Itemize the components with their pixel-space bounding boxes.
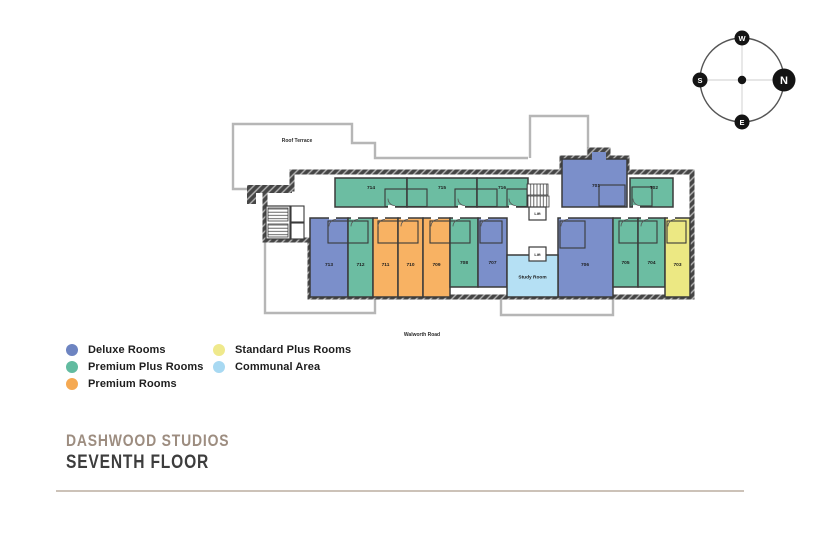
- legend-label-premium-plus: Premium Plus Rooms: [88, 361, 204, 373]
- roof-terrace-label: Roof Terrace: [282, 138, 313, 144]
- lift-lower-label: Lift: [534, 252, 541, 257]
- legend-item-communal: Communal Area: [213, 361, 351, 373]
- room-707-label: 707: [488, 260, 496, 266]
- compass-west-label: W: [738, 34, 746, 43]
- legend-label-standard-plus: Standard Plus Rooms: [235, 344, 351, 356]
- legend-label-deluxe: Deluxe Rooms: [88, 344, 166, 356]
- legend-swatch-communal: [213, 361, 225, 373]
- road-label: Walworth Road: [404, 332, 440, 338]
- legend-item-standard-plus: Standard Plus Rooms: [213, 344, 351, 356]
- brand-title: DASHWOOD STUDIOS: [66, 430, 229, 451]
- legend-item-premium: Premium Rooms: [66, 378, 204, 390]
- legend-swatch-premium: [66, 378, 78, 390]
- room-704-label: 704: [647, 260, 655, 266]
- entrance-wall-side: [247, 185, 256, 204]
- floor-plan: Lift Lift 714 715 716 701 702: [225, 105, 705, 355]
- room-716: [477, 178, 528, 207]
- room-712-label: 712: [356, 262, 364, 268]
- room-703-label: 703: [673, 262, 681, 268]
- room-715-label: 715: [438, 185, 446, 191]
- legend-swatch-premium-plus: [66, 361, 78, 373]
- room-715: [407, 178, 477, 207]
- study-room-label: Study Room: [518, 275, 546, 281]
- room-701: [562, 159, 627, 207]
- stairs-flight-mid: [527, 184, 548, 195]
- title-block: DASHWOOD STUDIOS SEVENTH FLOOR: [66, 430, 229, 476]
- legend-item-premium-plus: Premium Plus Rooms: [66, 361, 204, 373]
- room-705-label: 705: [621, 260, 629, 266]
- compass-south-label: S: [697, 76, 702, 85]
- room-711: [373, 218, 398, 297]
- page-title: SEVENTH FLOOR: [66, 451, 229, 476]
- stairs-flight: [268, 208, 288, 221]
- lower-center-terrace-outline: [501, 299, 613, 315]
- room-701-bay: [592, 152, 606, 160]
- room-704: [638, 218, 665, 287]
- room-714-label: 714: [367, 185, 375, 191]
- room-701-label: 701: [592, 183, 600, 189]
- legend-label-communal: Communal Area: [235, 361, 320, 373]
- stairs-flight-mid: [528, 196, 549, 207]
- stairs-flight: [268, 224, 288, 237]
- room-710: [398, 218, 423, 297]
- compass-north-label: N: [780, 75, 788, 87]
- footer-divider: [56, 490, 744, 492]
- room-708-label: 708: [460, 260, 468, 266]
- legend-column-1: Deluxe Rooms Premium Plus Rooms Premium …: [66, 344, 204, 395]
- room-714: [335, 178, 407, 207]
- legend-label-premium: Premium Rooms: [88, 378, 177, 390]
- room-709: [423, 218, 450, 297]
- room-709-label: 709: [432, 262, 440, 268]
- room-713-label: 713: [325, 262, 333, 268]
- room-716-label: 716: [498, 185, 506, 191]
- compass: W N E S: [683, 16, 807, 140]
- compass-center-dot: [738, 76, 746, 84]
- upper-terrace-outline: [530, 116, 588, 158]
- store-room: [291, 206, 304, 222]
- legend-swatch-standard-plus: [213, 344, 225, 356]
- room-702-label: 702: [650, 185, 658, 191]
- legend-column-2: Standard Plus Rooms Communal Area: [213, 344, 351, 378]
- compass-east-label: E: [739, 118, 744, 127]
- room-706-label: 706: [581, 262, 589, 268]
- lift-upper-label: Lift: [534, 211, 541, 216]
- room-711-label: 711: [382, 262, 390, 268]
- room-712: [348, 218, 373, 297]
- room-710-label: 710: [406, 262, 414, 268]
- room-708: [450, 218, 478, 287]
- room-705: [613, 218, 638, 287]
- store-room: [291, 223, 304, 239]
- room-713: [310, 218, 348, 297]
- legend-item-deluxe: Deluxe Rooms: [66, 344, 204, 356]
- legend-swatch-deluxe: [66, 344, 78, 356]
- room-707: [478, 218, 507, 287]
- page: Lift Lift 714 715 716 701 702: [0, 0, 828, 553]
